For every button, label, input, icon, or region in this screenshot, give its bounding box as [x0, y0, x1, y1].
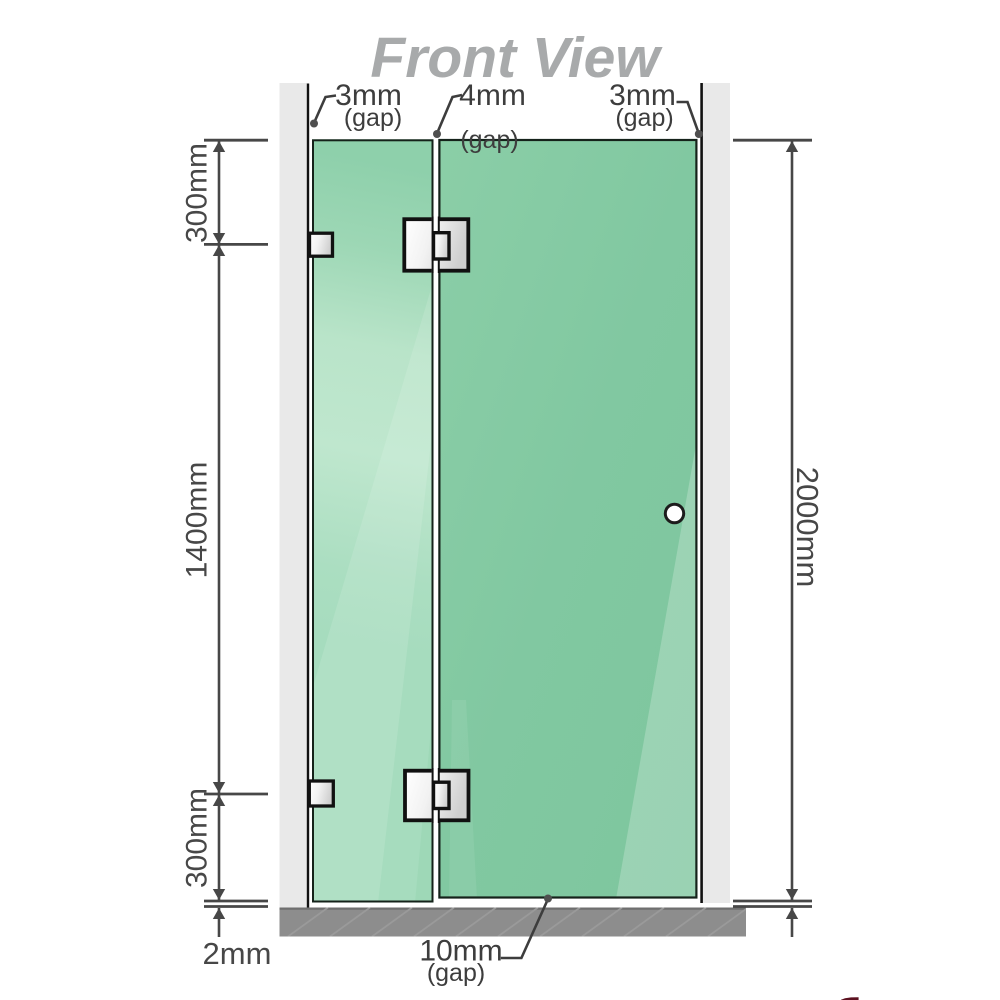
- svg-text:(gap): (gap): [460, 126, 518, 154]
- svg-text:(gap): (gap): [427, 959, 485, 987]
- svg-text:1400mm: 1400mm: [181, 462, 214, 579]
- svg-text:4mm: 4mm: [459, 79, 526, 112]
- svg-text:2mm: 2mm: [203, 936, 272, 971]
- svg-text:300mm: 300mm: [181, 788, 214, 888]
- svg-text:2000mm: 2000mm: [790, 467, 825, 588]
- svg-text:(gap): (gap): [344, 104, 402, 132]
- svg-text:(gap): (gap): [615, 104, 673, 132]
- svg-text:300mm: 300mm: [181, 143, 214, 243]
